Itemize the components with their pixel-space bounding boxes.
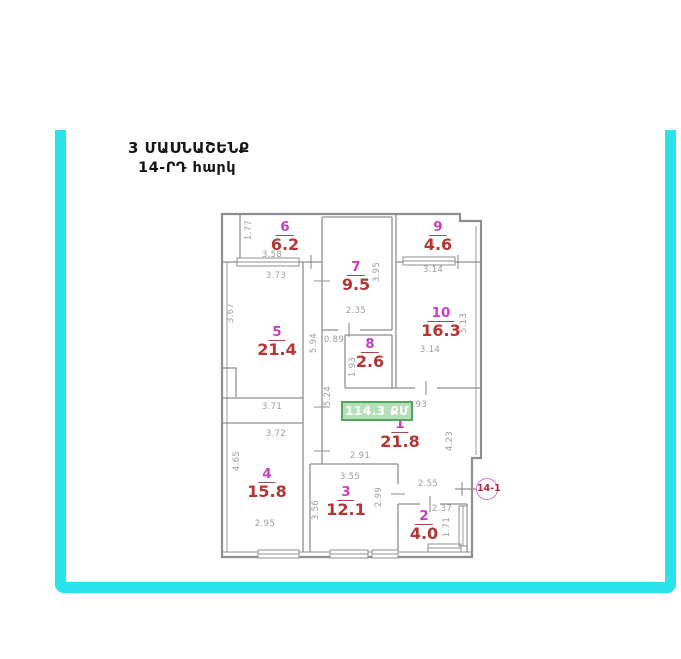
total-area-badge: 114.3 ՔՄ <box>341 401 413 421</box>
floor-plan-drawing <box>0 0 681 659</box>
floorplan-page: 3 ՄԱՍՆԱՇԵՆՔ 14-ՐԴ հարկ 121.824.0312.1415… <box>0 0 681 659</box>
unit-marker-14-1: 14-1 <box>476 478 498 500</box>
